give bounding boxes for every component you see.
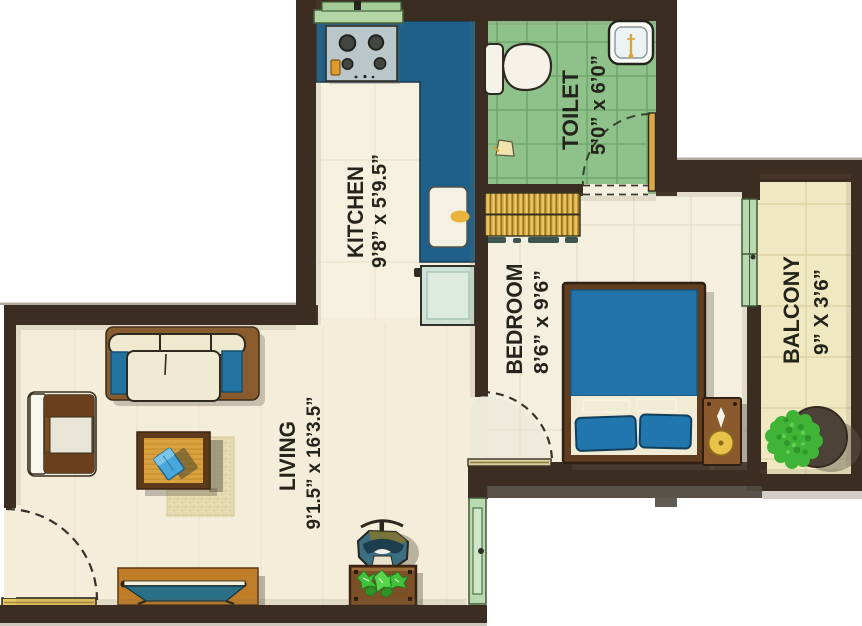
- svg-text:BALCONY: BALCONY: [779, 256, 804, 364]
- svg-text:9’8” x 5’9.5”: 9’8” x 5’9.5”: [369, 154, 391, 268]
- svg-text:8’6” x 9’6”: 8’6” x 9’6”: [531, 270, 553, 374]
- svg-text:KITCHEN: KITCHEN: [343, 166, 368, 258]
- svg-text:5’0” x 6’0”: 5’0” x 6’0”: [588, 55, 610, 155]
- svg-text:TOILET: TOILET: [558, 70, 583, 150]
- svg-text:LIVING: LIVING: [275, 421, 300, 491]
- svg-text:9” X 3’6”: 9” X 3’6”: [811, 269, 833, 355]
- svg-text:9’1.5” x 16’3.5”: 9’1.5” x 16’3.5”: [304, 397, 325, 530]
- svg-text:BEDROOM: BEDROOM: [502, 264, 527, 375]
